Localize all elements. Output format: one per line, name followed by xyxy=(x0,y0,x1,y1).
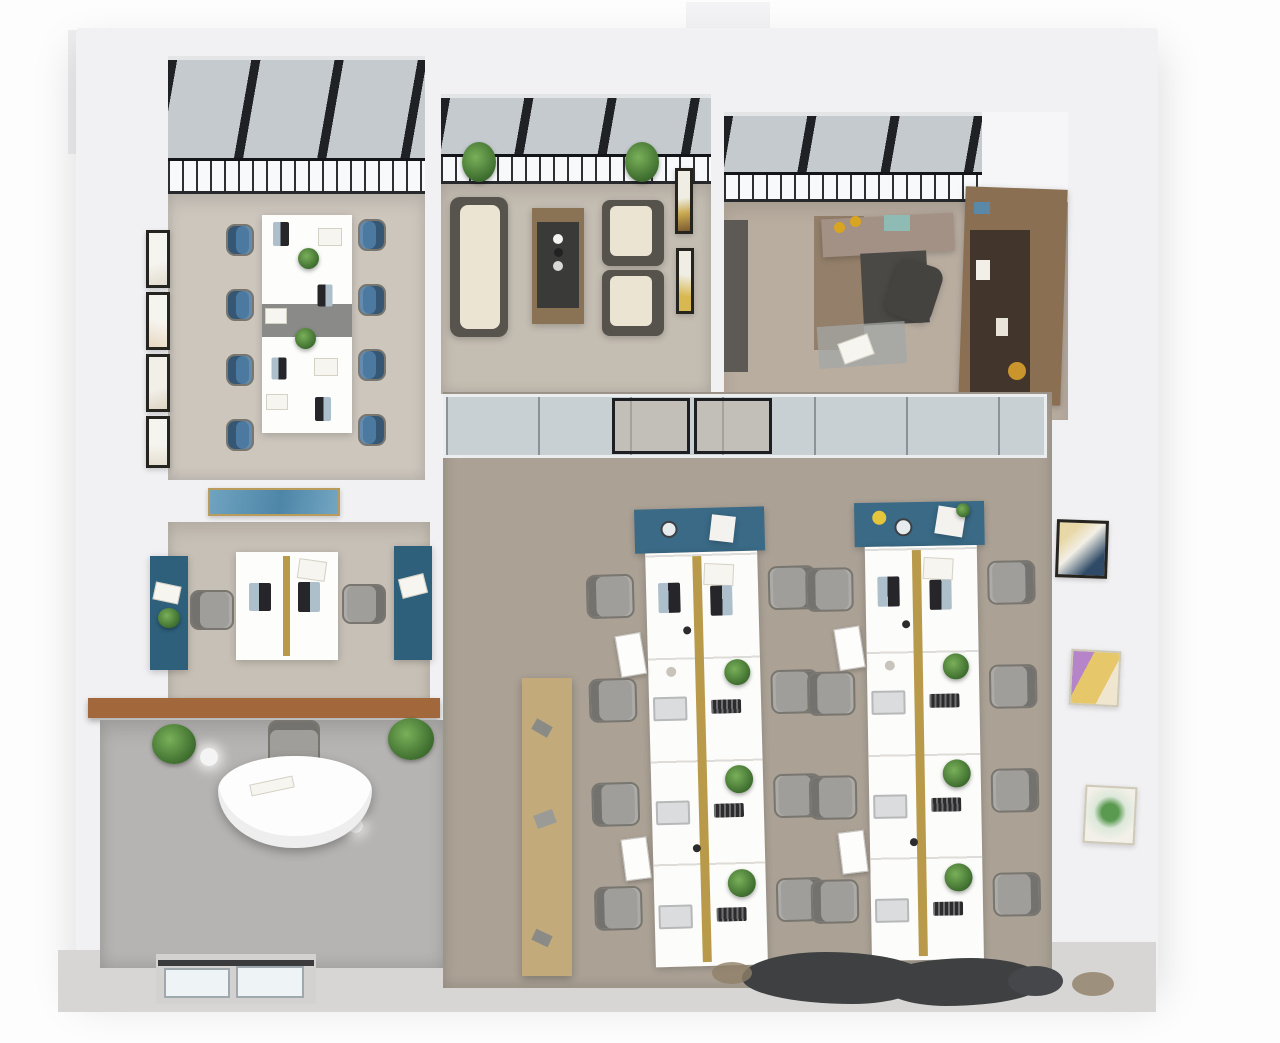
laptop xyxy=(658,583,681,614)
executive-office xyxy=(724,112,1068,420)
meeting-clerestory-window xyxy=(168,158,425,194)
tea-set xyxy=(553,234,563,244)
shelf-books xyxy=(976,260,990,280)
meeting-chair-blue xyxy=(226,289,254,321)
entrance-door xyxy=(156,954,316,1004)
lounge-plant xyxy=(462,142,496,182)
task-chair xyxy=(591,782,640,827)
armchair-cushion xyxy=(610,206,652,256)
laptop xyxy=(273,222,289,246)
shelf-plant xyxy=(1008,362,1026,380)
notepad xyxy=(314,358,338,376)
laptop xyxy=(298,582,320,612)
drawer-pod xyxy=(615,632,648,678)
exec-clerestory-window xyxy=(724,172,982,202)
open-office xyxy=(443,392,1052,988)
keyboard xyxy=(929,693,959,708)
desk-row-b xyxy=(854,501,992,963)
notepad xyxy=(266,394,288,410)
task-chair xyxy=(811,879,860,924)
exec-sideboard xyxy=(724,220,748,372)
notepad xyxy=(265,308,287,324)
lounge-wall-art xyxy=(676,248,694,314)
office-floor-plan-render xyxy=(0,0,1280,1043)
laptop xyxy=(315,397,331,421)
meeting-chair-blue xyxy=(358,349,386,381)
meeting-chair-blue xyxy=(358,284,386,316)
mouse xyxy=(910,838,918,846)
meeting-chair-blue xyxy=(226,419,254,451)
lounge-wall-art xyxy=(675,168,693,234)
task-chair xyxy=(805,567,854,612)
keyboard xyxy=(711,699,741,714)
door-glass-pane xyxy=(164,968,230,998)
laptop xyxy=(877,576,900,606)
reception-plant xyxy=(388,718,434,760)
lounge xyxy=(441,94,711,394)
floor-decal-spot xyxy=(712,962,752,984)
notepad xyxy=(318,228,342,246)
monitor xyxy=(875,898,909,923)
tea-set xyxy=(554,248,563,257)
drawer-pod xyxy=(621,836,652,881)
desk-book xyxy=(884,215,910,231)
meeting-wall-art xyxy=(146,292,170,350)
meeting-wall-art xyxy=(146,230,170,288)
shelf-books xyxy=(996,318,1008,336)
task-chair xyxy=(807,671,856,716)
laptop xyxy=(272,358,287,380)
glass-door xyxy=(612,398,690,454)
task-chair xyxy=(594,886,643,931)
tall-gold-cabinet xyxy=(522,678,572,976)
monitor xyxy=(658,904,693,929)
laptop xyxy=(929,579,952,609)
drawer-pod xyxy=(833,625,865,671)
task-chair xyxy=(991,768,1040,813)
task-chair xyxy=(987,560,1036,605)
open-office-wall-art xyxy=(1069,649,1122,708)
lounge-plant xyxy=(625,142,659,182)
open-office-wall-art xyxy=(1083,785,1138,846)
teal-cabinet xyxy=(394,546,432,660)
reception xyxy=(100,718,445,968)
world-map-art xyxy=(208,488,340,516)
table-plant xyxy=(298,248,319,269)
meeting-room xyxy=(168,56,425,480)
office-chair xyxy=(190,590,234,630)
table-plant xyxy=(295,328,316,349)
office-chair xyxy=(342,584,386,624)
task-chair xyxy=(586,574,635,619)
task-chair xyxy=(588,678,637,723)
meeting-wall-art xyxy=(146,354,170,412)
reception-plant xyxy=(152,724,196,764)
paper-tray xyxy=(923,557,954,581)
armchair-cushion xyxy=(610,276,652,326)
exec-skylight-glass xyxy=(724,112,982,172)
door-glass-pane xyxy=(236,966,304,998)
tea-set xyxy=(553,261,563,271)
meeting-chair-blue xyxy=(226,224,254,256)
monitor xyxy=(871,690,905,715)
monitor xyxy=(656,800,691,825)
downlight xyxy=(200,748,218,766)
desk-cup-gold xyxy=(850,216,861,227)
notepad xyxy=(297,558,328,582)
task-chair xyxy=(992,872,1041,917)
floor-decal-dark xyxy=(1008,966,1063,996)
meeting-skylight-glass xyxy=(168,56,425,158)
wood-slat-partition xyxy=(88,698,440,718)
keyboard xyxy=(933,901,963,916)
desk-divider-gold xyxy=(283,556,290,656)
monitor xyxy=(653,696,688,721)
laptop xyxy=(710,585,733,616)
cabinet-plant xyxy=(158,608,180,628)
meeting-wall-art xyxy=(146,416,170,468)
small-office xyxy=(148,480,432,708)
paper-tray xyxy=(703,563,734,586)
task-chair xyxy=(989,664,1038,709)
monitor xyxy=(873,794,907,819)
shelf-box xyxy=(974,202,990,214)
meeting-chair-blue xyxy=(226,354,254,386)
row-end-cabinet xyxy=(634,506,765,553)
laptop xyxy=(318,285,333,307)
sofa-cushions xyxy=(460,205,500,329)
floor-decal-spot xyxy=(985,992,1003,1002)
floor-decal-spot xyxy=(1072,972,1114,996)
meeting-chair-blue xyxy=(358,414,386,446)
open-office-wall-art xyxy=(1055,519,1109,579)
glass-door xyxy=(694,398,772,454)
desk-row-a xyxy=(634,506,776,969)
desk-cup-gold xyxy=(834,222,845,233)
meeting-chair-blue xyxy=(358,219,386,251)
pinned-photo xyxy=(709,514,736,543)
laptop xyxy=(249,583,271,611)
keyboard xyxy=(716,907,746,922)
drawer-pod xyxy=(838,830,869,875)
task-chair xyxy=(809,775,858,820)
keyboard xyxy=(931,797,961,812)
keyboard xyxy=(714,803,744,818)
